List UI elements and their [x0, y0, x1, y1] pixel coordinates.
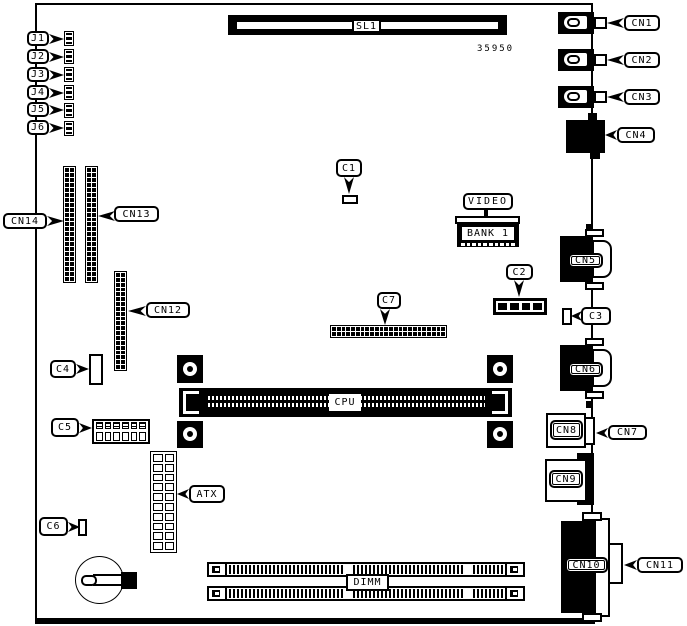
cn3-opening-inner: [567, 92, 580, 101]
callout-c6: C6: [39, 517, 68, 536]
pin-cell: [116, 355, 120, 359]
pin-header-c7: [330, 325, 447, 338]
pin-cell: [66, 132, 72, 134]
callout-c3: C3: [581, 307, 611, 325]
pin-cell: [116, 351, 120, 355]
pin-cell: [92, 242, 96, 246]
pointer-j3: [49, 70, 64, 80]
callout-cn7-text: CN7: [617, 427, 638, 438]
pin-cell: [87, 173, 91, 177]
pin-cell: [65, 272, 69, 276]
pin-cell: [441, 332, 445, 336]
pin-cell: [116, 312, 120, 316]
pin-cell: [65, 257, 69, 261]
callout-j5: J5: [27, 102, 49, 117]
pin-cell: [139, 432, 146, 441]
pin-cell: [116, 360, 120, 364]
pin-cell: [153, 483, 163, 491]
pin-cell: [394, 327, 398, 331]
pin-cell: [92, 168, 96, 172]
pin-cell: [87, 203, 91, 207]
dimm1-latch-left: [209, 564, 227, 575]
label-cn5: CN5: [568, 253, 603, 268]
cn5-tab-bottom: [585, 282, 604, 290]
pin-cell: [337, 327, 341, 331]
pin-cell: [153, 493, 163, 501]
cn2-opening-inner: [567, 55, 580, 64]
pin-cell: [165, 464, 175, 472]
component-c3: [562, 308, 572, 325]
pin-cell: [70, 188, 74, 192]
pin-cell: [87, 213, 91, 217]
pin-cell: [70, 178, 74, 182]
pin-cell: [65, 222, 69, 226]
pin-cell: [153, 464, 163, 472]
board-edge-bottom: [35, 618, 595, 624]
pin-cell: [92, 257, 96, 261]
pin-cell: [332, 332, 336, 336]
label-dimm: DIMM: [346, 574, 389, 591]
cn4-stub-bottom: [590, 153, 600, 159]
pointer-c4: [76, 364, 89, 374]
pin-cell: [121, 278, 125, 282]
pin-cell: [70, 218, 74, 222]
pin-cell: [96, 422, 103, 429]
pin-cell: [427, 332, 431, 336]
callout-cn4: CN4: [617, 127, 655, 143]
cn10-dsub-inner: [608, 543, 623, 584]
pin-cell: [70, 237, 74, 241]
pin-cell: [498, 303, 507, 310]
callout-j6: J6: [27, 120, 49, 135]
pin-cell: [394, 332, 398, 336]
pin-cell: [165, 493, 175, 501]
callout-j1: J1: [27, 31, 49, 46]
pointer-cn11: [624, 560, 637, 570]
pin-cell: [87, 262, 91, 266]
cpu-corner-tr: [487, 355, 513, 383]
cn4-stub-top: [588, 113, 597, 120]
pin-cell: [121, 321, 125, 325]
callout-cn11: CN11: [637, 557, 683, 573]
cpu-hole-bl: [183, 427, 197, 441]
pin-cell: [370, 327, 374, 331]
pin-cell: [370, 332, 374, 336]
pin-cell: [116, 278, 120, 282]
pin-cell: [87, 277, 91, 281]
pin-cell: [65, 168, 69, 172]
jumper-block-j4: [64, 85, 74, 100]
callout-c2-text: C2: [512, 267, 526, 278]
pin-cell: [65, 188, 69, 192]
pointer-cn7: [596, 428, 608, 438]
callout-video-text: VIDEO: [468, 196, 508, 207]
pin-cell: [165, 503, 175, 511]
callout-j3: J3: [27, 67, 49, 82]
callout-j2-text: J2: [31, 51, 45, 62]
pin-cell: [70, 252, 74, 256]
pin-cell: [153, 532, 163, 540]
pin-cell: [467, 243, 471, 246]
bank1-pins: [460, 242, 516, 247]
pin-cell: [121, 273, 125, 277]
pin-cell: [116, 283, 120, 287]
pin-cell: [121, 283, 125, 287]
callout-j2: J2: [27, 49, 49, 64]
pin-cell: [87, 242, 91, 246]
pin-cell: [116, 292, 120, 296]
jumper-block-j5: [64, 103, 74, 118]
pin-cell: [121, 307, 125, 311]
pin-cell: [65, 242, 69, 246]
pin-cell: [66, 105, 72, 107]
pin-cell: [356, 332, 360, 336]
label-cn6: CN6: [568, 362, 603, 377]
callout-atx-text: ATX: [196, 489, 217, 500]
pin-cell: [70, 272, 74, 276]
dimm1-latch-right: [505, 564, 523, 575]
callout-cn12: CN12: [146, 302, 190, 318]
dimm2-latch-left: [209, 588, 227, 599]
callout-cn2-text: CN2: [631, 55, 652, 66]
label-sl1: SL1: [352, 19, 381, 33]
pin-cell: [87, 178, 91, 182]
callout-cn12-text: CN12: [154, 305, 182, 316]
pointer-c1: [344, 177, 354, 194]
callout-c2: C2: [506, 264, 533, 280]
pin-cell: [65, 218, 69, 222]
callout-cn3: CN3: [624, 89, 660, 105]
component-c4: [89, 354, 103, 385]
pin-cell: [70, 232, 74, 236]
pin-cell: [116, 297, 120, 301]
pin-cell: [66, 109, 72, 111]
pin-cell: [92, 198, 96, 202]
component-c1: [342, 195, 358, 204]
pin-cell: [489, 243, 493, 246]
dimm2-gap-2: [463, 588, 471, 599]
pin-cell: [92, 203, 96, 207]
pin-cell: [121, 360, 125, 364]
pin-cell: [389, 332, 393, 336]
pin-cell: [165, 532, 175, 540]
pin-cell: [418, 327, 422, 331]
label-cn8: CN8: [550, 420, 583, 440]
pin-cell: [65, 227, 69, 231]
pin-cell: [337, 332, 341, 336]
component-c2: [493, 298, 547, 315]
cn1-opening-inner: [567, 18, 580, 27]
label-bank1: BANK 1: [461, 226, 515, 241]
pin-cell: [92, 232, 96, 236]
pin-cell: [510, 303, 519, 310]
cn10-tab-bottom: [582, 613, 602, 622]
pin-cell: [65, 203, 69, 207]
label-cn9-text: CN9: [555, 474, 576, 485]
callout-cn1: CN1: [624, 15, 660, 31]
pin-cell: [70, 257, 74, 261]
callout-cn7: CN7: [608, 425, 647, 440]
pin-cell: [384, 332, 388, 336]
label-cn5-text: CN5: [575, 255, 596, 266]
callout-j4-text: J4: [31, 87, 45, 98]
pin-cell: [66, 123, 72, 125]
pin-cell: [116, 346, 120, 350]
cn6-tab-bottom: [585, 391, 604, 399]
pin-cell: [361, 327, 365, 331]
pin-cell: [365, 327, 369, 331]
pin-cell: [87, 168, 91, 172]
pin-cell: [65, 252, 69, 256]
pin-cell: [105, 432, 112, 441]
pin-cell: [87, 208, 91, 212]
pin-cell: [121, 326, 125, 330]
callout-c7-text: C7: [382, 295, 396, 306]
pin-cell: [92, 267, 96, 271]
pin-cell: [399, 332, 403, 336]
connector-cn1: [558, 12, 594, 34]
pin-cell: [165, 542, 175, 550]
pin-cell: [65, 267, 69, 271]
cn5-tab-top: [585, 229, 604, 237]
pin-cell: [92, 213, 96, 217]
pin-cell: [165, 483, 175, 491]
pin-cell: [511, 243, 515, 246]
pin-cell: [165, 523, 175, 531]
pin-cell: [121, 312, 125, 316]
pin-cell: [70, 227, 74, 231]
pin-cell: [472, 243, 476, 246]
pin-cell: [122, 432, 129, 441]
pointer-j1: [49, 34, 64, 44]
callout-j5-text: J5: [31, 104, 45, 115]
pin-cell: [70, 222, 74, 226]
pin-cell: [165, 454, 175, 462]
pin-cell: [408, 327, 412, 331]
pin-cell: [87, 267, 91, 271]
pointer-c2: [514, 280, 524, 297]
pin-cell: [105, 422, 112, 429]
cpu-bracket-left: [183, 391, 199, 414]
pin-cell: [403, 327, 407, 331]
pin-cell: [399, 327, 403, 331]
pin-cell: [403, 332, 407, 336]
pin-cell: [121, 317, 125, 321]
pin-cell: [87, 198, 91, 202]
callout-cn13: CN13: [114, 206, 159, 222]
callout-c3-text: C3: [589, 311, 603, 322]
pin-cell: [65, 178, 69, 182]
pin-cell: [66, 37, 72, 39]
pin-cell: [92, 218, 96, 222]
connector-cn3: [558, 86, 594, 108]
pin-cell: [87, 218, 91, 222]
cpu-hole-tr: [493, 362, 507, 376]
label-cn9: CN9: [549, 470, 583, 488]
cpu-corner-br: [487, 421, 513, 448]
label-cpu-text: CPU: [334, 397, 355, 408]
pin-cell: [66, 55, 72, 57]
pin-cell: [116, 326, 120, 330]
pin-cell: [506, 243, 510, 246]
pin-cell: [70, 208, 74, 212]
pin-header-cn12: [114, 271, 127, 371]
pin-cell: [87, 227, 91, 231]
pin-cell: [65, 277, 69, 281]
pin-cell: [87, 183, 91, 187]
pin-cell: [116, 365, 120, 369]
pin-cell: [437, 332, 441, 336]
pin-cell: [342, 327, 346, 331]
pin-cell: [66, 42, 72, 44]
pin-cell: [70, 168, 74, 172]
pointer-j2: [49, 52, 64, 62]
pin-cell: [432, 327, 436, 331]
label-cn10: CN10: [565, 557, 608, 573]
label-cn8-text: CN8: [556, 425, 577, 436]
pin-cell: [121, 297, 125, 301]
pin-cell: [153, 523, 163, 531]
pin-cell: [92, 183, 96, 187]
pin-cell: [422, 327, 426, 331]
pin-cell: [87, 188, 91, 192]
pin-cell: [87, 193, 91, 197]
dimm2-latch-right: [505, 588, 523, 599]
pin-cell: [87, 232, 91, 236]
callout-c5-text: C5: [58, 422, 72, 433]
pin-cell: [92, 193, 96, 197]
pin-cell: [70, 242, 74, 246]
pin-cell: [92, 178, 96, 182]
pin-cell: [418, 332, 422, 336]
pin-cell: [113, 432, 120, 441]
pointer-cn4: [605, 130, 617, 140]
jumper-block-j3: [64, 67, 74, 82]
callout-c5: C5: [51, 418, 79, 437]
pin-cell: [351, 327, 355, 331]
connector-cn2: [558, 49, 594, 71]
pin-cell: [375, 327, 379, 331]
pin-cell: [413, 332, 417, 336]
pin-cell: [121, 346, 125, 350]
pointer-cn14: [47, 216, 64, 226]
callout-video: VIDEO: [463, 193, 513, 210]
pin-cell: [116, 273, 120, 277]
pin-cell: [92, 252, 96, 256]
cn2-tab: [594, 54, 607, 66]
callout-cn4-text: CN4: [625, 130, 646, 141]
pin-cell: [522, 303, 531, 310]
pin-cell: [116, 307, 120, 311]
pin-cell: [70, 213, 74, 217]
callout-j3-text: J3: [31, 69, 45, 80]
pin-cell: [65, 232, 69, 236]
callout-j1-text: J1: [31, 33, 45, 44]
pin-cell: [65, 198, 69, 202]
callout-c1: C1: [336, 159, 362, 177]
pin-cell: [96, 432, 103, 441]
c5-pins-bottom: [95, 431, 147, 442]
pin-cell: [121, 336, 125, 340]
pin-cell: [380, 332, 384, 336]
cn6-tab-top: [585, 338, 604, 346]
cn10-tab-top: [582, 512, 602, 521]
callout-c4: C4: [50, 360, 76, 378]
pin-cell: [116, 331, 120, 335]
pin-cell: [92, 272, 96, 276]
pin-cell: [346, 332, 350, 336]
pointer-j5: [49, 105, 64, 115]
cpu-corner-tl: [177, 355, 203, 383]
callout-atx: ATX: [189, 485, 225, 503]
pin-cell: [66, 60, 72, 62]
pin-cell: [70, 267, 74, 271]
pin-cell: [65, 208, 69, 212]
pin-cell: [70, 198, 74, 202]
pin-cell: [422, 332, 426, 336]
pin-cell: [384, 327, 388, 331]
pin-cell: [153, 474, 163, 482]
pin-cell: [66, 78, 72, 80]
cpu-hole-br: [493, 427, 507, 441]
pin-cell: [66, 96, 72, 98]
pin-cell: [87, 252, 91, 256]
pin-cell: [66, 91, 72, 93]
edge-stub-2: [586, 401, 593, 408]
pin-cell: [66, 87, 72, 89]
cpu-corner-bl: [177, 421, 203, 448]
label-cpu: CPU: [329, 394, 361, 411]
pin-cell: [70, 277, 74, 281]
callout-cn14-text: CN14: [11, 216, 39, 227]
pointer-cn3: [607, 92, 624, 102]
pin-cell: [413, 327, 417, 331]
component-c5: [92, 419, 150, 444]
pin-cell: [116, 317, 120, 321]
pin-cell: [361, 332, 365, 336]
pin-cell: [432, 332, 436, 336]
pin-cell: [478, 243, 482, 246]
component-c6: [78, 519, 87, 536]
pin-cell: [342, 332, 346, 336]
callout-cn1-text: CN1: [631, 18, 652, 29]
pin-cell: [113, 422, 120, 429]
dimm1-gap-2: [463, 564, 471, 575]
pin-cell: [66, 51, 72, 53]
pin-cell: [153, 542, 163, 550]
pin-cell: [116, 321, 120, 325]
pin-cell: [121, 292, 125, 296]
pin-cell: [483, 243, 487, 246]
pin-cell: [351, 332, 355, 336]
pin-cell: [87, 257, 91, 261]
pointer-cn1: [607, 18, 624, 28]
pin-cell: [116, 288, 120, 292]
pin-cell: [66, 69, 72, 71]
pin-cell: [165, 474, 175, 482]
pin-cell: [65, 173, 69, 177]
pin-cell: [92, 208, 96, 212]
connector-cn4: [566, 120, 605, 153]
pin-cell: [131, 422, 138, 429]
pin-cell: [356, 327, 360, 331]
battery-holder-bar: [93, 574, 123, 586]
pin-cell: [121, 341, 125, 345]
jumper-block-j1: [64, 31, 74, 46]
jumper-block-j2: [64, 49, 74, 64]
pin-cell: [375, 332, 379, 336]
pin-cell: [365, 332, 369, 336]
